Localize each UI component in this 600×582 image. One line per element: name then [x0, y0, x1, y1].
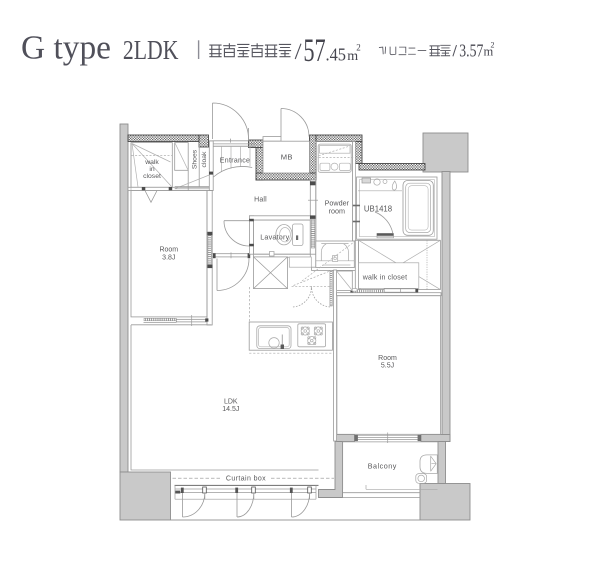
svg-text:Shoes: Shoes [191, 149, 198, 169]
svg-text:cloak: cloak [201, 151, 208, 167]
svg-text:14.5J: 14.5J [222, 406, 239, 413]
svg-text:Room: Room [378, 355, 397, 362]
svg-text:2: 2 [491, 41, 495, 50]
svg-text:3.8J: 3.8J [162, 255, 175, 262]
svg-text:Lavatory: Lavatory [260, 232, 289, 241]
svg-text:closet: closet [143, 173, 161, 180]
svg-text:Room: Room [159, 247, 178, 254]
svg-text:57: 57 [303, 33, 325, 69]
svg-text:2: 2 [356, 43, 361, 53]
svg-text:.45: .45 [326, 45, 347, 65]
svg-text:room: room [329, 206, 345, 215]
svg-text:Curtain box: Curtain box [226, 476, 266, 483]
svg-text:UB1418: UB1418 [364, 205, 392, 214]
svg-text:MB: MB [281, 152, 293, 161]
svg-text:walk: walk [144, 159, 159, 166]
svg-text:Balcony: Balcony [368, 461, 397, 470]
svg-text:in: in [149, 166, 155, 173]
svg-text:LDK: LDK [224, 399, 238, 406]
svg-text:Entrance: Entrance [220, 158, 250, 165]
svg-text:Hall: Hall [254, 197, 267, 204]
svg-text:walk in closet: walk in closet [362, 275, 407, 282]
svg-text:2LDK: 2LDK [123, 35, 179, 65]
svg-text:5.5J: 5.5J [381, 362, 394, 369]
svg-text:G type: G type [21, 30, 111, 67]
svg-text:3.57: 3.57 [459, 40, 483, 60]
